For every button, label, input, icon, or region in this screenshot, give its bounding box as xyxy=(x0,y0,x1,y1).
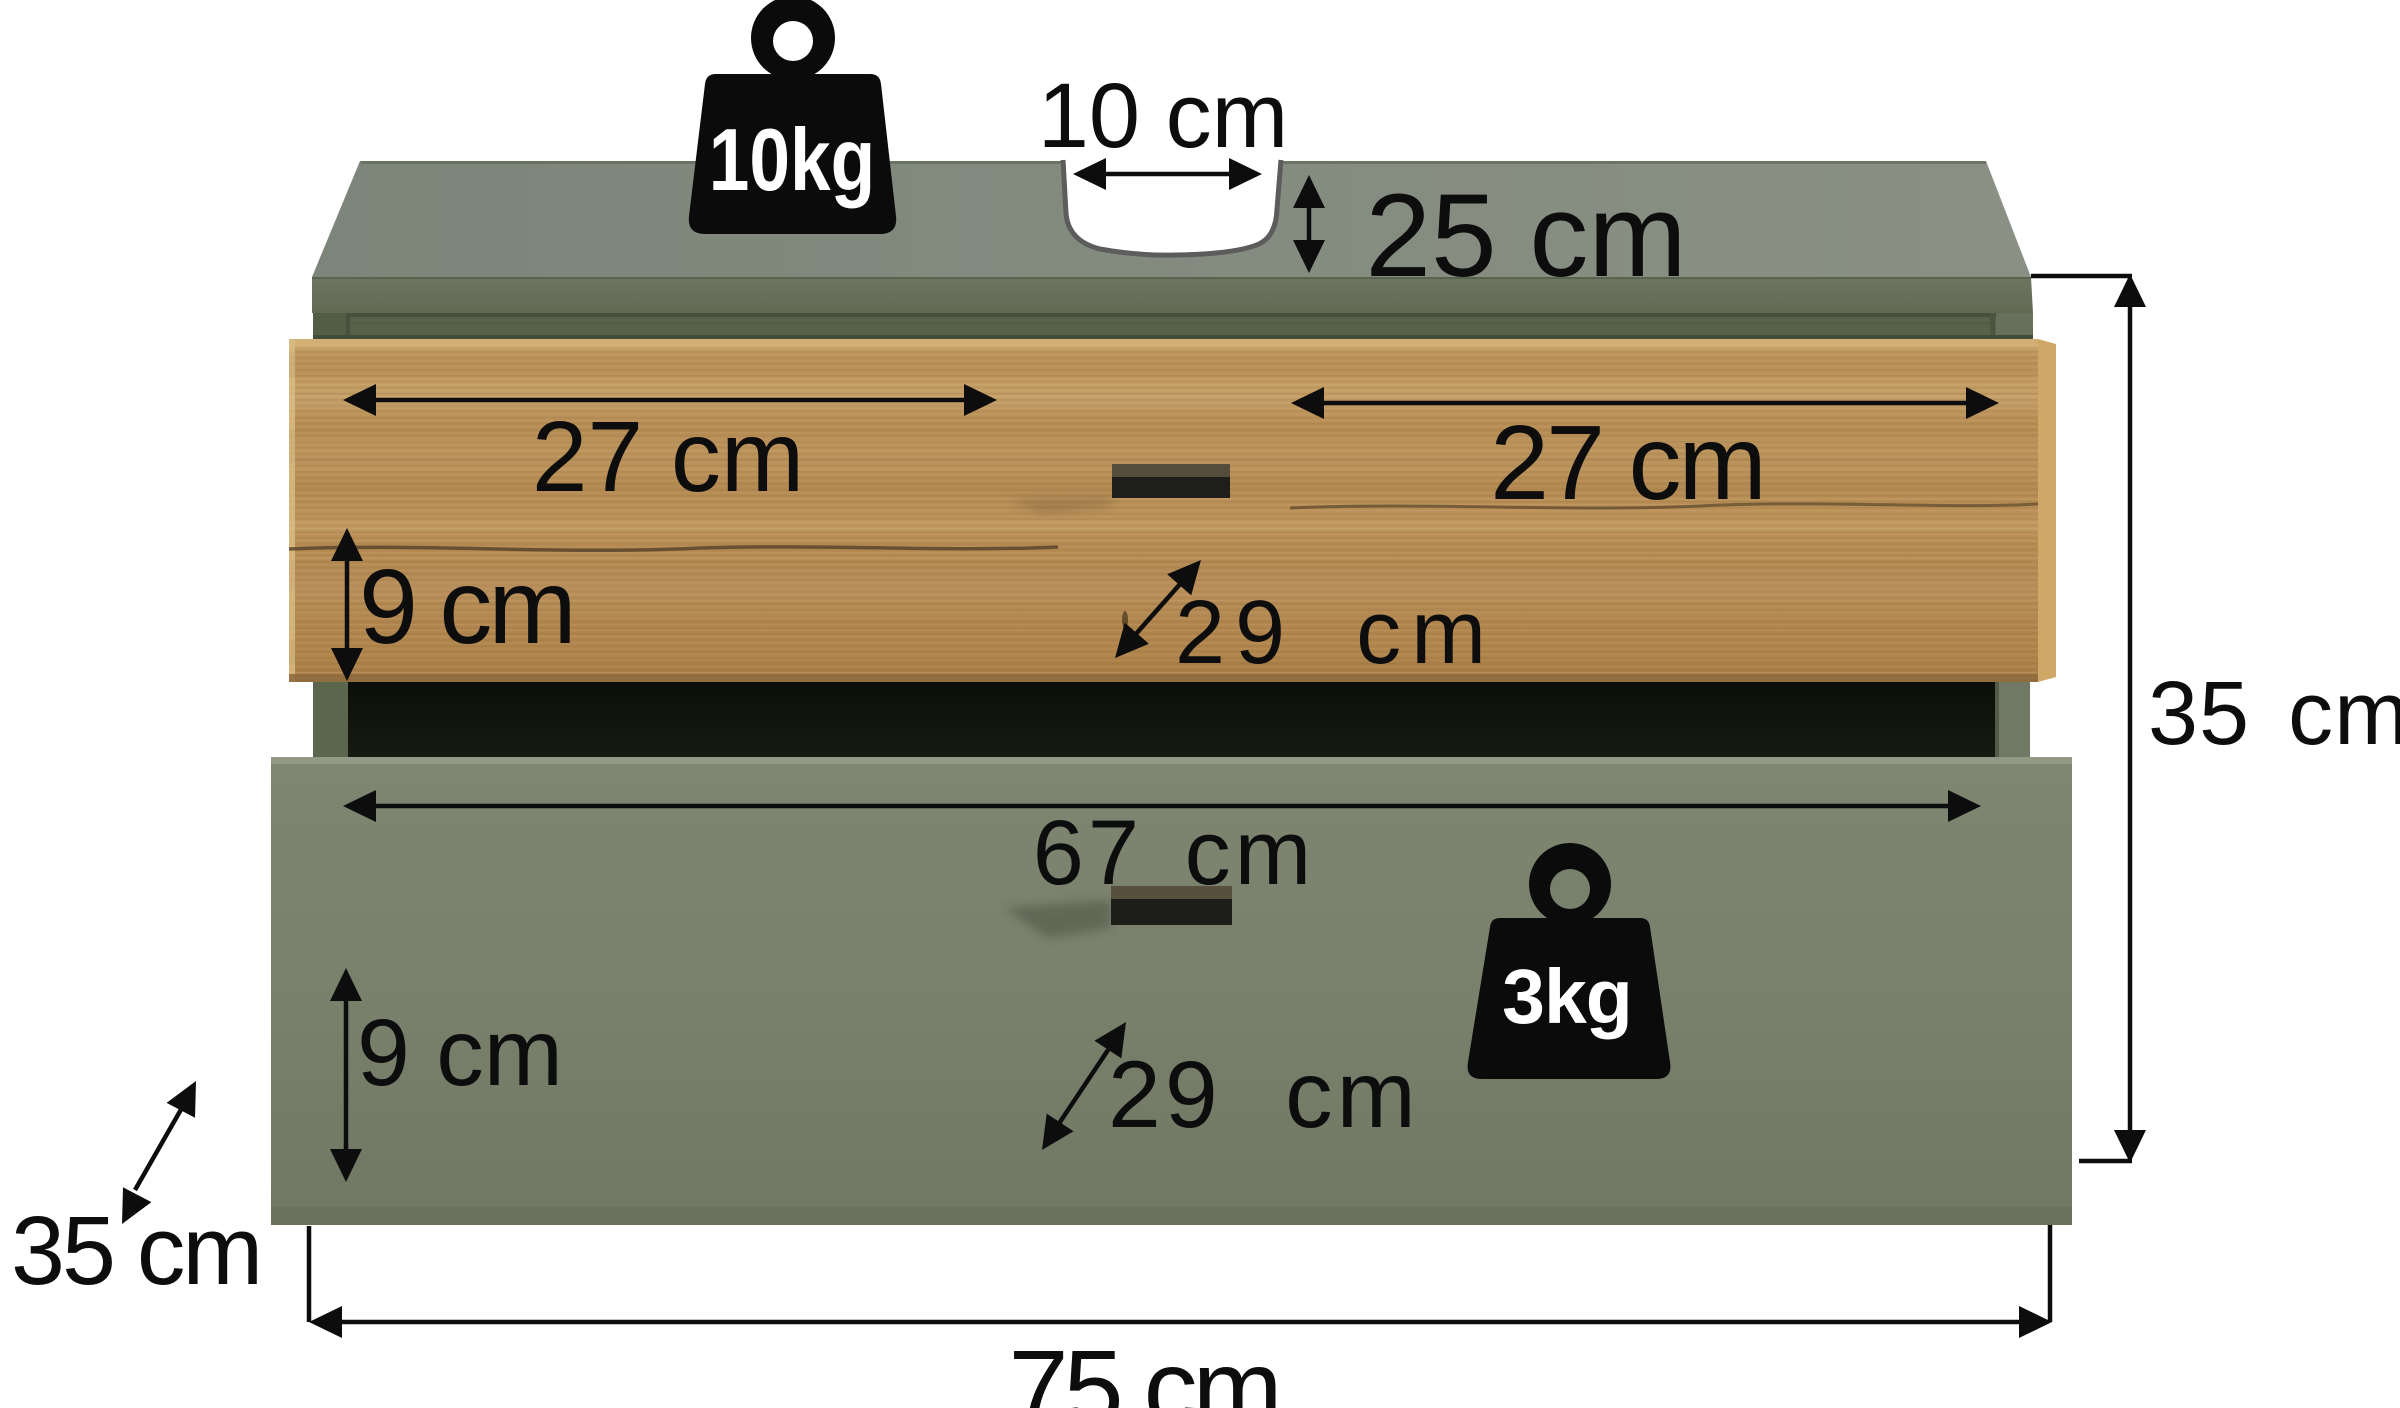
svg-text:3kg: 3kg xyxy=(1502,954,1632,1040)
svg-text:75 cm: 75 cm xyxy=(1008,1327,1277,1408)
svg-text:9 cm: 9 cm xyxy=(357,1000,563,1106)
svg-text:29 cm: 29 cm xyxy=(1108,1042,1420,1148)
svg-text:27 cm: 27 cm xyxy=(1490,404,1764,522)
svg-text:29 cm: 29 cm xyxy=(1175,583,1496,683)
svg-text:10 cm: 10 cm xyxy=(1038,65,1289,167)
svg-text:35 cm: 35 cm xyxy=(11,1196,260,1305)
svg-text:35 cm: 35 cm xyxy=(2148,664,2400,764)
svg-text:27 cm: 27 cm xyxy=(532,401,804,513)
svg-text:9 cm: 9 cm xyxy=(359,548,573,666)
svg-text:10kg: 10kg xyxy=(709,112,875,210)
svg-text:67 cm: 67 cm xyxy=(1033,802,1316,904)
svg-text:25 cm: 25 cm xyxy=(1365,170,1686,302)
